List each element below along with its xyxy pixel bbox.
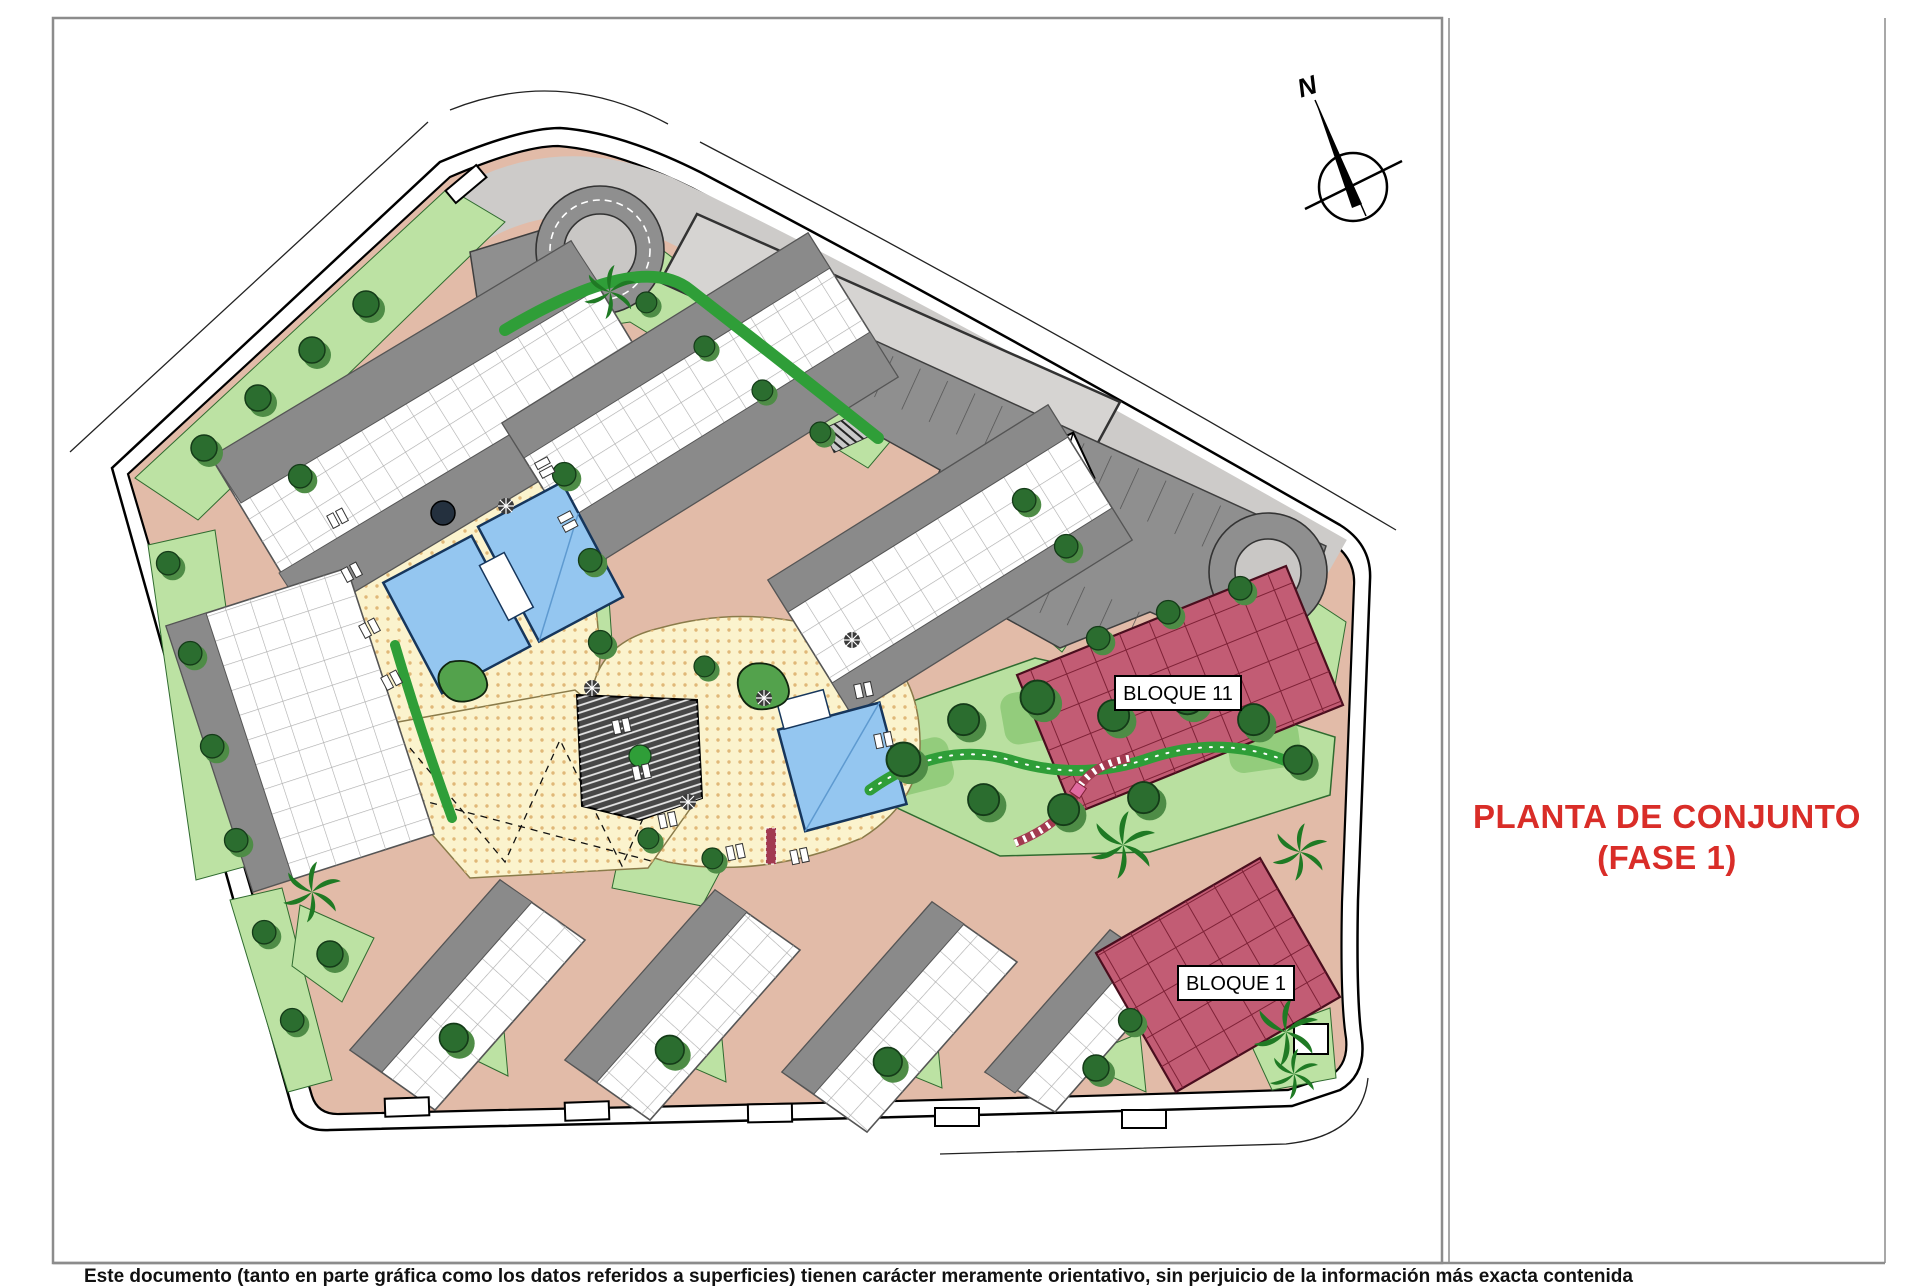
compass-north-label: N — [1293, 69, 1321, 104]
bloque-1-label-text: BLOQUE 1 — [1186, 973, 1286, 995]
plan-title-line1: PLANTA DE CONJUNTO — [1449, 796, 1885, 837]
bloque-11-label-text: BLOQUE 11 — [1123, 683, 1233, 705]
bloque-11-label: BLOQUE 11 — [1115, 676, 1241, 710]
plan-title: PLANTA DE CONJUNTO (FASE 1) — [1449, 796, 1885, 878]
plan-title-line2: (FASE 1) — [1449, 837, 1885, 878]
north-arrow-compass: N — [1293, 69, 1402, 221]
disclaimer-text: Este documento (tanto en parte gráfica c… — [84, 1266, 1633, 1288]
bloque-1-label: BLOQUE 1 — [1178, 966, 1294, 1000]
drawing-sheet: BLOQUE 11 BLOQUE 1 N PLANTA DE CONJUNTO … — [0, 0, 1920, 1280]
site-plan-canvas: BLOQUE 11 BLOQUE 1 N — [0, 0, 1920, 1280]
spa-pool — [431, 501, 455, 525]
